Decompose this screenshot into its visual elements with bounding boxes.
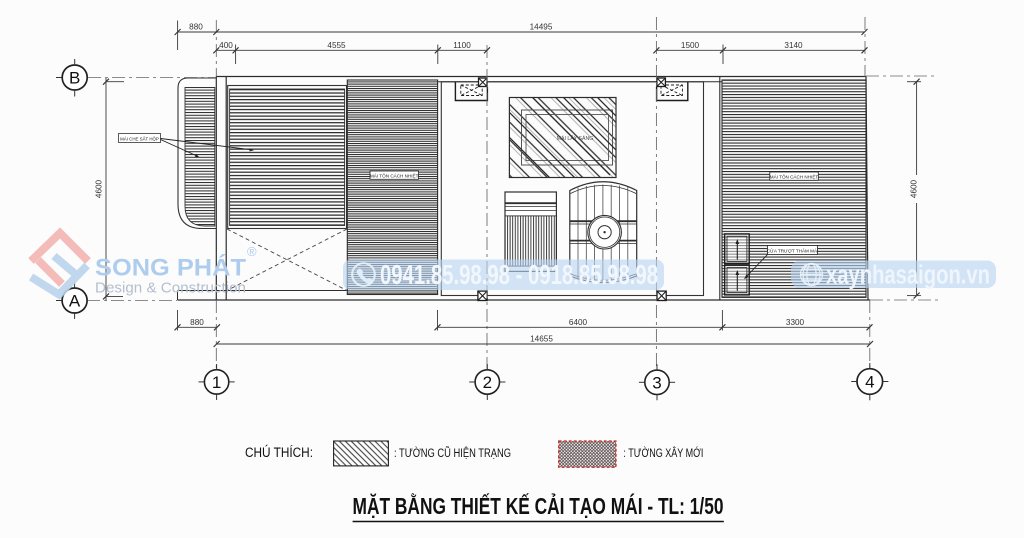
svg-text:400: 400 [219, 41, 233, 50]
svg-text:MẶT BẰNG THIẾT KẾ CẢI TẠO MÁI: MẶT BẰNG THIẾT KẾ CẢI TẠO MÁI - TL: 1/50 [353, 491, 724, 519]
svg-text:6400: 6400 [569, 318, 588, 327]
svg-text:880: 880 [189, 23, 203, 32]
svg-text:: TƯỜNG CŨ HIỆN TRẠNG: : TƯỜNG CŨ HIỆN TRẠNG [394, 447, 511, 460]
svg-text:MÁI CHE SẮT HỘP: MÁI CHE SẮT HỘP [120, 136, 159, 141]
svg-text:CHÚ THÍCH:: CHÚ THÍCH: [245, 445, 313, 460]
svg-text:xaynhasaigon.vn: xaynhasaigon.vn [826, 262, 990, 290]
svg-text:3: 3 [652, 373, 661, 392]
svg-text:SONG PHÁT: SONG PHÁT [95, 254, 246, 282]
svg-text:Design & Construction: Design & Construction [95, 280, 246, 297]
svg-text:B: B [69, 69, 80, 88]
svg-text:14655: 14655 [530, 335, 553, 344]
svg-text:1500: 1500 [681, 41, 700, 50]
svg-text:2: 2 [483, 373, 492, 392]
svg-text:3140: 3140 [784, 41, 803, 50]
svg-text:®: ® [247, 244, 257, 259]
svg-text:: TƯỜNG XÂY MỚI: : TƯỜNG XÂY MỚI [623, 447, 703, 460]
svg-text:3300: 3300 [786, 318, 805, 327]
svg-text:1: 1 [212, 373, 221, 392]
svg-text:MÁI TÔN CÁCH NHIỆT: MÁI TÔN CÁCH NHIỆT [370, 171, 419, 178]
svg-text:CỬA TRƯỢT THĂM MÁI: CỬA TRƯỢT THĂM MÁI [767, 247, 819, 253]
svg-text:MÁI TÔN CÁCH NHIỆT: MÁI TÔN CÁCH NHIỆT [770, 172, 819, 179]
svg-text:MÁI LẤY SÁNG: MÁI LẤY SÁNG [557, 135, 594, 142]
svg-text:0941.85.98.98 - 0918.85.98.98: 0941.85.98.98 - 0918.85.98.98 [380, 259, 658, 290]
svg-text:1100: 1100 [453, 41, 471, 50]
svg-text:A: A [69, 292, 81, 311]
svg-text:14495: 14495 [530, 23, 553, 32]
svg-text:4600: 4600 [910, 179, 919, 198]
svg-text:4600: 4600 [95, 179, 104, 198]
svg-text:880: 880 [190, 318, 204, 327]
svg-text:4: 4 [865, 373, 874, 392]
svg-text:4555: 4555 [327, 41, 346, 50]
